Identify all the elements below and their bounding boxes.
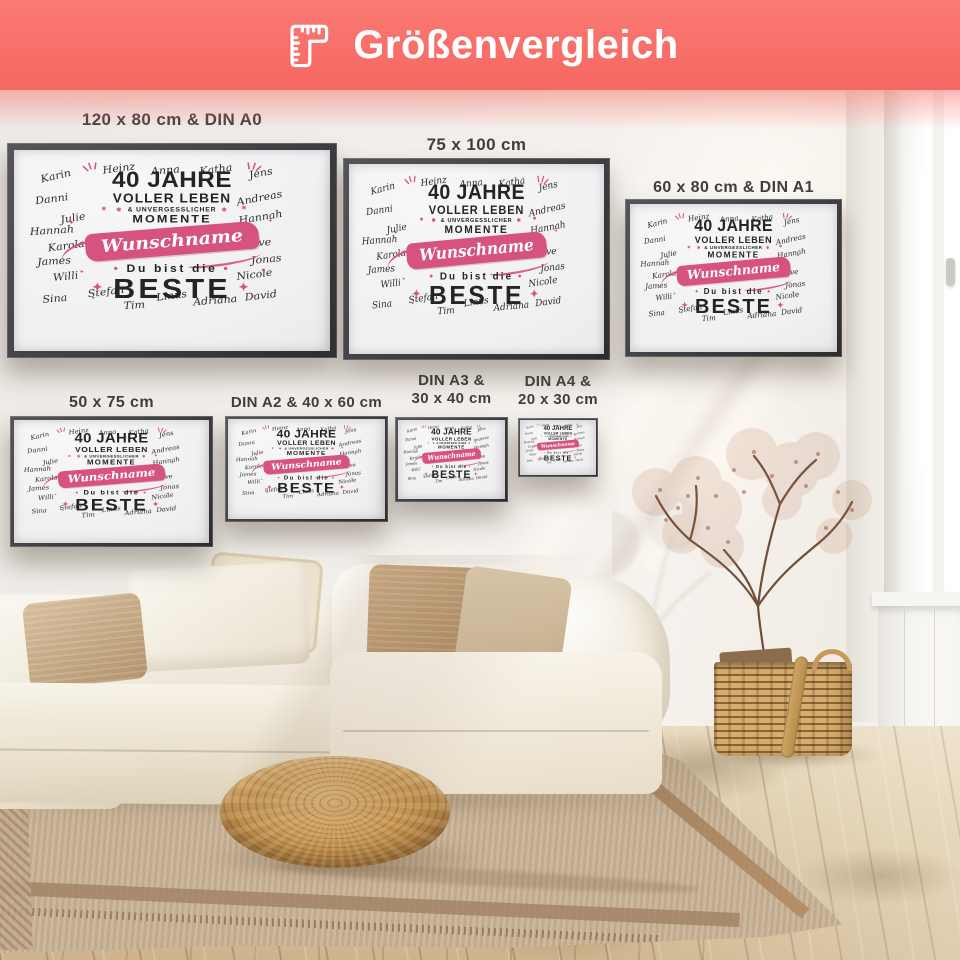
star-icon: ✦	[533, 439, 534, 441]
asterisk-icon: ✱	[420, 216, 424, 222]
page-title: Größenvergleich	[353, 23, 678, 68]
poster-din-a3-30x40: KarinHeinzAnnaKathaJensDanniAndreasJulie…	[395, 417, 508, 502]
star-icon: ✦	[536, 452, 537, 454]
poster-50x75-paper: KarinHeinzAnnaKathaJensDanniAndreasJulie…	[14, 420, 209, 543]
poster-size-label-line: DIN A4 &	[518, 373, 598, 391]
window-handle	[946, 258, 955, 286]
poster-60x80-din-a1-paper: KarinHeinzAnnaKathaJensDanniAndreasJulie…	[630, 204, 837, 352]
star-icon: ✦	[69, 219, 75, 227]
poster-size-label-line: 20 x 30 cm	[518, 391, 598, 409]
poster-momente-line: MOMENTE	[14, 213, 330, 226]
poster-momente-line: MOMENTE	[398, 445, 505, 450]
poster-50x75-label: 50 x 75 cm	[69, 393, 154, 413]
header-banner: Größenvergleich	[0, 0, 960, 90]
star-icon: ✦	[166, 491, 169, 495]
asterisk-icon: ✱	[271, 447, 273, 450]
window-mullion	[934, 88, 943, 604]
poster-momente-line: MOMENTE	[630, 250, 837, 260]
star-icon: ✦	[346, 490, 349, 493]
star-icon: ✦	[796, 253, 799, 258]
poster-75x100-label: 75 x 100 cm	[427, 135, 527, 156]
poster-headline: 40 JAHRE	[14, 166, 330, 192]
asterisk-icon: ✱	[779, 244, 782, 249]
star-icon: ✦	[479, 476, 481, 479]
poster-size-label-line: DIN A2 & 40 x 60 cm	[231, 394, 382, 412]
wicker-basket	[714, 662, 852, 756]
poster-beste-line: BESTE	[520, 454, 596, 463]
star-icon: ✦	[402, 276, 406, 282]
poster-subline: VOLLER LEBEN	[630, 234, 837, 245]
star-icon: ✦	[680, 311, 683, 315]
star-icon: ✦	[579, 452, 580, 454]
poster-120x80-din-a0: KarinHeinzAnnaKathaJensDanniAndreasJulie…	[7, 143, 337, 358]
star-icon: ✦	[791, 290, 794, 295]
asterisk-icon: ✱	[575, 435, 576, 437]
star-icon: ✦	[417, 447, 419, 450]
star-icon: ✦	[61, 509, 64, 512]
poster-beste-line: BESTE	[630, 294, 837, 318]
star-icon: ✦	[581, 438, 582, 440]
star-icon: ✦	[481, 466, 483, 469]
asterisk-icon: ✱	[242, 205, 247, 211]
star-icon: ✦	[255, 453, 258, 457]
poster-din-a4-20x30-label: DIN A4 &20 x 30 cm	[518, 373, 598, 410]
poster-din-a2-40x60-paper: KarinHeinzAnnaKathaJensDanniAndreasJulie…	[228, 419, 385, 519]
asterisk-icon: ✱	[533, 216, 537, 222]
star-icon: ✦	[48, 462, 52, 467]
star-icon: ✦	[577, 459, 578, 461]
poster-beste-line: BESTE	[349, 280, 604, 310]
poster-momente-line: MOMENTE	[349, 223, 604, 236]
star-icon: ✦	[666, 255, 670, 261]
poster-smallline: & UNVERGESSLICHER	[14, 206, 330, 213]
star-icon: ✦	[350, 477, 353, 480]
poster-artwork: KarinHeinzAnnaKathaJensDanniAndreasJulie…	[14, 420, 209, 543]
poster-headline: 40 JAHRE	[398, 426, 505, 436]
poster-artwork: KarinHeinzAnnaKathaJensDanniAndreasJulie…	[14, 150, 330, 351]
window	[884, 88, 960, 604]
poster-size-label-line: 60 x 80 cm & DIN A1	[653, 178, 814, 198]
windowsill	[872, 592, 960, 606]
poster-beste-line: BESTE	[14, 495, 209, 515]
star-icon: ✦	[260, 267, 265, 274]
poster-subline: VOLLER LEBEN	[14, 445, 209, 454]
poster-artwork: KarinHeinzAnnaKathaJensDanniAndreasJulie…	[630, 204, 837, 352]
poster-artwork: KarinHeinzAnnaKathaJensDanniAndreasJulie…	[520, 420, 596, 475]
poster-75x100: KarinHeinzAnnaKathaJensDanniAndreasJulie…	[343, 158, 610, 360]
star-icon: ✦	[393, 229, 398, 236]
asterisk-icon: ✱	[341, 446, 343, 449]
asterisk-icon: ✱	[541, 435, 542, 437]
poster-din-a4-20x30-paper: KarinHeinzAnnaKathaJensDanniAndreasJulie…	[520, 420, 596, 475]
poster-subline: VOLLER LEBEN	[349, 203, 604, 217]
poster-size-label-line: 50 x 75 cm	[69, 393, 154, 413]
star-icon: ✦	[266, 491, 268, 494]
poster-60x80-din-a1-label: 60 x 80 cm & DIN A1	[653, 178, 814, 198]
star-icon: ✦	[554, 227, 558, 233]
size-comparison-product-image: 120 x 80 cm & DIN A0 KarinHeinzAnnaKatha…	[0, 0, 960, 960]
asterisk-icon: ✱	[68, 454, 71, 458]
poster-din-a3-30x40-paper: KarinHeinzAnnaKathaJensDanniAndreasJulie…	[398, 420, 505, 499]
poster-smallline: & UNVERGESSLICHER	[349, 216, 604, 223]
poster-momente-line: MOMENTE	[14, 458, 209, 466]
star-icon: ✦	[484, 446, 486, 449]
asterisk-icon: ✱	[428, 442, 430, 444]
star-icon: ✦	[252, 293, 257, 300]
asterisk-icon: ✱	[475, 441, 477, 443]
star-icon: ✦	[411, 302, 415, 307]
poster-artwork: KarinHeinzAnnaKathaJensDanniAndreasJulie…	[349, 164, 604, 354]
star-icon: ✦	[79, 269, 84, 275]
poster-beste-line: BESTE	[228, 480, 385, 496]
star-icon: ✦	[161, 507, 164, 511]
star-icon: ✦	[260, 478, 262, 481]
poster-size-label-line: DIN A3 &	[412, 372, 492, 390]
poster-120x80-din-a0-paper: KarinHeinzAnnaKathaJensDanniAndreasJulie…	[14, 150, 330, 351]
star-icon: ✦	[54, 493, 57, 497]
star-icon: ✦	[171, 461, 174, 465]
poster-size-label-line: 75 x 100 cm	[427, 135, 527, 156]
poster-beste-line: BESTE	[14, 273, 330, 305]
ruler-icon	[281, 17, 333, 73]
window-frame	[884, 88, 901, 604]
star-icon: ✦	[548, 274, 552, 280]
poster-75x100-paper: KarinHeinzAnnaKathaJensDanniAndreasJulie…	[349, 164, 604, 354]
star-icon: ✦	[538, 460, 539, 461]
poster-size-label-line: 30 x 40 cm	[412, 390, 492, 408]
star-icon: ✦	[91, 295, 95, 300]
poster-headline: 40 JAHRE	[228, 427, 385, 440]
poster-60x80-din-a1: KarinHeinzAnnaKathaJensDanniAndreasJulie…	[625, 199, 842, 357]
poster-din-a3-30x40-label: DIN A3 &30 x 40 cm	[412, 372, 492, 409]
poster-artwork: KarinHeinzAnnaKathaJensDanniAndreasJulie…	[398, 420, 505, 499]
star-icon: ✦	[786, 309, 789, 314]
star-icon: ✦	[673, 291, 676, 296]
star-icon: ✦	[268, 217, 273, 224]
poster-headline: 40 JAHRE	[349, 179, 604, 203]
poster-momente-line: MOMENTE	[228, 450, 385, 457]
cushion	[123, 561, 310, 672]
rattan-pouf	[220, 756, 450, 868]
asterisk-icon: ✱	[687, 245, 690, 250]
poster-din-a2-40x60-label: DIN A2 & 40 x 60 cm	[231, 394, 382, 412]
star-icon: ✦	[424, 477, 425, 479]
asterisk-icon: ✱	[101, 206, 106, 212]
star-icon: ✦	[420, 467, 422, 469]
poster-din-a2-40x60: KarinHeinzAnnaKathaJensDanniAndreasJulie…	[225, 416, 388, 522]
poster-artwork: KarinHeinzAnnaKathaJensDanniAndreasJulie…	[228, 419, 385, 519]
poster-subline: VOLLER LEBEN	[14, 191, 330, 206]
poster-headline: 40 JAHRE	[630, 216, 837, 235]
poster-50x75: KarinHeinzAnnaKathaJensDanniAndreasJulie…	[10, 416, 213, 547]
window-pane	[901, 88, 960, 604]
poster-headline: 40 JAHRE	[14, 430, 209, 446]
poster-din-a4-20x30: KarinHeinzAnnaKathaJensDanniAndreasJulie…	[518, 418, 598, 477]
star-icon: ✦	[354, 452, 357, 455]
star-icon: ✦	[541, 299, 545, 305]
asterisk-icon: ✱	[154, 453, 157, 457]
poster-beste-line: BESTE	[398, 468, 505, 481]
cushion	[22, 592, 148, 690]
